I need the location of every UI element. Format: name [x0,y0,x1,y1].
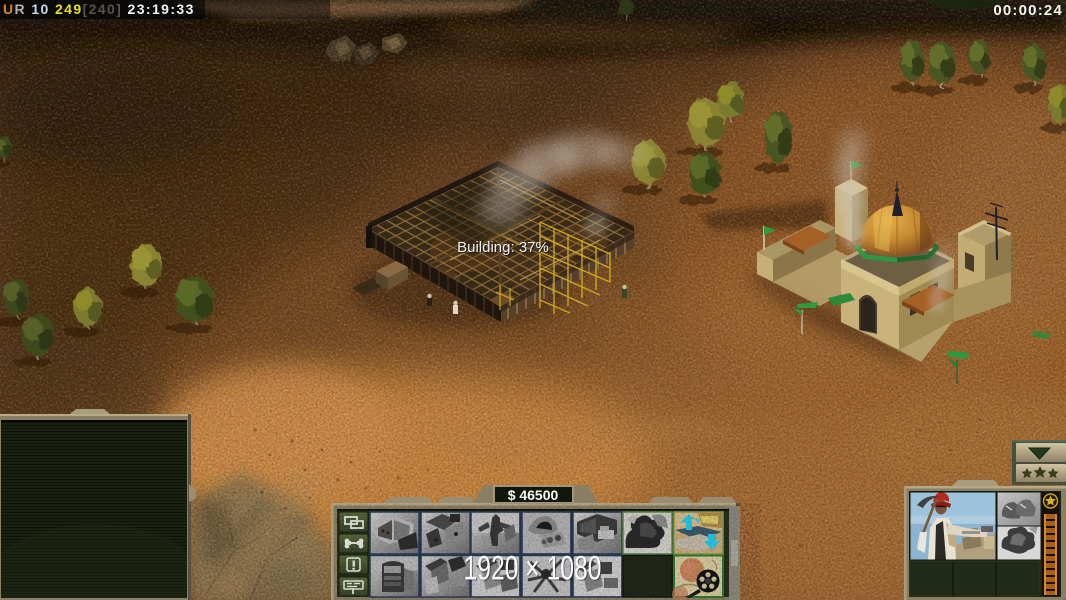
svg-text:1920 × 1080: 1920 × 1080 [464,550,602,588]
svg-text:UR 10 249[240] 23:19:33: UR 10 249[240] 23:19:33 [3,1,195,17]
svg-text:Building: 37%: Building: 37% [457,239,549,256]
svg-text:$ 46500: $ 46500 [508,487,559,503]
svg-text:00:00:24: 00:00:24 [993,2,1063,19]
